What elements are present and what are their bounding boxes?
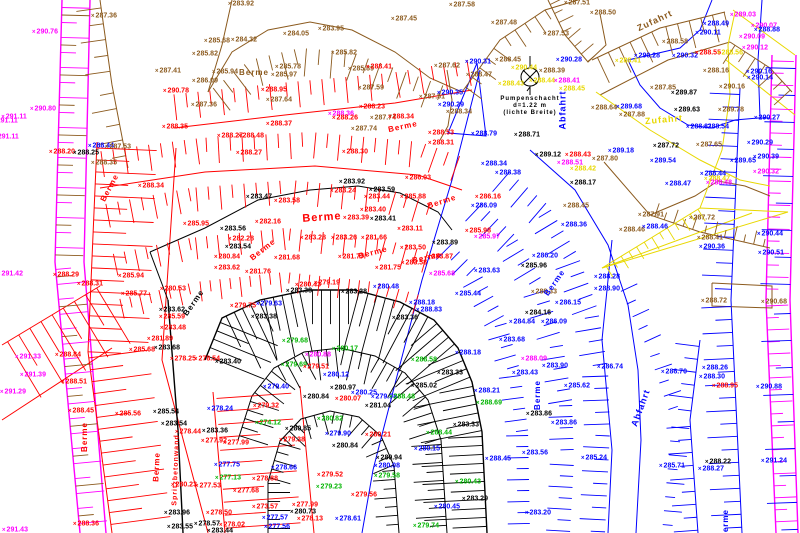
- elevation-point-label: 288.23: [359, 104, 385, 111]
- elevation-point-label: 288.09: [521, 356, 547, 363]
- elevation-point-label: 285.96: [521, 263, 547, 270]
- elevation-point-label: 278.50: [206, 510, 232, 517]
- elevation-point-label: 285.56: [115, 411, 141, 418]
- elevation-point-label: 288.53: [428, 130, 454, 137]
- elevation-point-label: 290.31: [465, 59, 491, 66]
- elevation-point-label: 283.86: [551, 420, 577, 427]
- elevation-point-label: 288.30: [699, 374, 725, 381]
- elevation-point-label: 288.20: [49, 149, 75, 156]
- elevation-point-label: 288.38: [495, 170, 521, 177]
- elevation-point-label: 280.88: [305, 352, 331, 359]
- elevation-point-label: 288.49: [703, 21, 729, 28]
- elevation-point-label: 287.88: [619, 112, 645, 119]
- elevation-point-label: 288.35: [91, 160, 117, 167]
- elevation-point-label: 283.47: [246, 194, 272, 201]
- elevation-point-label: 290.28: [556, 57, 582, 64]
- elevation-point-label: 278.57: [194, 521, 220, 528]
- elevation-point-label: 283.48: [160, 325, 186, 332]
- elevation-point-label: 288.41: [615, 58, 641, 65]
- elevation-point-label: 288.18: [455, 350, 481, 357]
- elevation-point-label: 280.21: [365, 432, 391, 439]
- elevation-point-label: 288.43: [498, 81, 524, 88]
- elevation-point-label: 281.68: [274, 255, 300, 262]
- elevation-point-label: 280.82: [317, 416, 343, 423]
- elevation-point-label: 279.63: [256, 301, 282, 308]
- elevation-point-label: 288.28: [594, 274, 620, 281]
- plan-text-label: Berme: [534, 380, 542, 410]
- elevation-point-label: 288.47: [665, 181, 691, 188]
- elevation-point-label: 289.12: [535, 152, 561, 159]
- elevation-point-label: 283.26: [331, 235, 357, 242]
- plan-text-label: Berme: [182, 288, 206, 317]
- elevation-point-label: 285.95: [183, 221, 209, 228]
- elevation-point-label: 288.37: [266, 121, 292, 128]
- elevation-point-label: 288.83: [416, 307, 442, 314]
- elevation-point-label: 285.71: [659, 463, 685, 470]
- elevation-point-label: 288.44: [426, 430, 452, 437]
- elevation-point-label: 277.57: [262, 515, 288, 522]
- elevation-point-label: 281.89: [147, 336, 173, 343]
- plan-text-label: Abfahrt: [630, 388, 652, 428]
- plan-text-label: Abfahrt: [559, 91, 568, 130]
- elevation-point-label: 281.75: [375, 265, 401, 272]
- elevation-point-label: 277.99: [292, 502, 318, 509]
- elevation-point-label: 286.09: [541, 319, 567, 326]
- elevation-point-label: 290.11: [695, 30, 721, 37]
- plan-text-label: d=1.22 m: [513, 103, 547, 109]
- elevation-point-label: 285.82: [331, 50, 357, 57]
- elevation-point-label: 290.29: [438, 102, 464, 109]
- plan-text-label: Berme: [152, 452, 162, 482]
- elevation-point-label: 288.45: [563, 203, 589, 210]
- elevation-point-label: 282.16: [255, 219, 281, 226]
- plan-text-label: Berme: [302, 211, 342, 225]
- elevation-point-label: 290.76: [32, 29, 58, 36]
- elevation-point-label: 283.96: [164, 510, 190, 517]
- elevation-point-label: 286.15: [555, 300, 581, 307]
- elevation-point-label: 290.14: [747, 75, 773, 82]
- elevation-point-label: 283.92: [228, 1, 254, 8]
- elevation-point-label: 288.90: [594, 286, 620, 293]
- elevation-point-label: 274.12: [255, 420, 281, 427]
- elevation-point-label: 287.53: [543, 31, 569, 38]
- elevation-point-label: 288.46: [642, 224, 668, 231]
- elevation-point-label: 288.41: [697, 235, 723, 242]
- elevation-point-label: 288.48: [706, 180, 732, 187]
- elevation-point-label: 288.34: [138, 183, 164, 190]
- elevation-point-label: 283.43: [512, 370, 538, 377]
- elevation-point-label: 285.68: [429, 271, 455, 278]
- elevation-point-label: 278.88: [252, 476, 278, 483]
- elevation-point-label: 290.35: [437, 90, 463, 97]
- elevation-point-label: 283.29: [462, 496, 488, 503]
- elevation-point-label: 286.09: [192, 78, 218, 85]
- elevation-point-label: 288.25: [73, 150, 99, 157]
- elevation-point-label: 289.68: [616, 104, 642, 111]
- elevation-point-label: 288.39: [539, 68, 565, 75]
- elevation-point-label: 284.84: [509, 319, 535, 326]
- elevation-point-label: 288.48: [238, 133, 264, 140]
- plan-text-label: Berme: [99, 173, 120, 203]
- elevation-point-label: 288.31: [77, 281, 103, 288]
- elevation-point-label: 279.75: [230, 303, 256, 310]
- elevation-point-label: 277.53: [195, 483, 221, 490]
- elevation-point-label: 283.55: [167, 524, 193, 531]
- elevation-point-label: 289.65: [730, 158, 756, 165]
- elevation-point-label: 288.16: [703, 68, 729, 75]
- elevation-point-label: 285.62: [564, 383, 590, 390]
- elevation-point-label: 288.43: [565, 152, 591, 159]
- site-plan-canvas: 287.36290.76287.41290.78288.35291.11291.…: [0, 0, 800, 533]
- elevation-point-label: 291.29: [0, 389, 26, 396]
- elevation-point-label: 287.36: [191, 102, 217, 109]
- elevation-point-label: 285.54: [153, 409, 179, 416]
- elevation-point-label: 291.11: [0, 134, 19, 141]
- elevation-point-label: 288.42: [570, 166, 596, 173]
- plan-text-label: Berme: [358, 245, 389, 260]
- plan-labels-layer: 287.36290.76287.41290.78288.35291.11291.…: [0, 0, 800, 533]
- elevation-point-label: 280.73: [290, 509, 316, 516]
- elevation-point-label: 287.36: [91, 13, 117, 20]
- elevation-point-label: 279.68: [282, 338, 308, 345]
- elevation-point-label: 283.36: [392, 315, 418, 322]
- plan-text-label: Berme: [722, 509, 730, 533]
- elevation-point-label: 286.09: [471, 203, 497, 210]
- elevation-point-label: 285.97: [271, 72, 297, 79]
- elevation-point-label: 288.48: [389, 394, 415, 401]
- elevation-point-label: 279.32: [253, 403, 279, 410]
- elevation-point-label: 291.11: [0, 118, 18, 125]
- elevation-point-label: 283.63: [474, 268, 500, 275]
- elevation-point-label: 288.18: [409, 300, 435, 307]
- elevation-point-label: 287.64: [266, 97, 292, 104]
- elevation-point-label: 277.75: [214, 462, 240, 469]
- elevation-point-label: 283.89: [432, 240, 458, 247]
- elevation-point-label: 285.59: [159, 314, 185, 321]
- elevation-point-label: 287.53: [105, 144, 131, 151]
- elevation-point-label: 287.91: [638, 212, 664, 219]
- elevation-point-label: 288.71: [514, 132, 540, 139]
- elevation-point-label: 283.40: [360, 207, 386, 214]
- elevation-point-label: 287.48: [491, 20, 517, 27]
- elevation-point-label: 281.76: [245, 269, 271, 276]
- elevation-point-label: 288.22: [705, 459, 731, 466]
- elevation-point-label: 283.68: [499, 337, 525, 344]
- elevation-point-label: 289.54: [650, 158, 676, 165]
- elevation-point-label: 277.56: [264, 524, 290, 531]
- elevation-point-label: 290.88: [756, 384, 782, 391]
- elevation-point-label: 286.74: [597, 364, 623, 371]
- elevation-point-label: 290.80: [30, 106, 56, 113]
- elevation-point-label: 280.84: [303, 394, 329, 401]
- elevation-point-label: 278.61: [335, 516, 361, 523]
- elevation-point-label: 285.94: [212, 69, 238, 76]
- elevation-point-label: 286.70: [661, 369, 687, 376]
- elevation-point-label: 273.57: [252, 504, 278, 511]
- elevation-point-label: 285.77: [121, 291, 147, 298]
- elevation-point-label: 291.33: [15, 354, 41, 361]
- elevation-point-label: 285.02: [411, 383, 437, 390]
- elevation-point-label: 278.24: [207, 406, 233, 413]
- elevation-point-label: 288.45: [495, 57, 521, 64]
- elevation-point-label: 288.88: [754, 27, 780, 34]
- plan-text-label: Zufahrt: [636, 9, 674, 33]
- elevation-point-label: 280.94: [376, 455, 402, 462]
- elevation-point-label: 288.56: [717, 50, 743, 57]
- elevation-point-label: 290.39: [753, 154, 779, 161]
- elevation-point-label: 283.95: [318, 26, 344, 33]
- elevation-point-label: 283.36: [202, 428, 228, 435]
- elevation-point-label: 279.90: [325, 431, 351, 438]
- elevation-point-label: 288.51: [61, 379, 87, 386]
- elevation-point-label: 287.74: [351, 126, 377, 133]
- elevation-point-label: 288.72: [701, 298, 727, 305]
- elevation-point-label: 283.59: [369, 187, 395, 194]
- elevation-point-label: 288.45: [485, 456, 511, 463]
- elevation-point-label: 283.54: [225, 244, 251, 251]
- elevation-point-label: 287.45: [391, 16, 417, 23]
- elevation-point-label: 285.68: [129, 347, 155, 354]
- plan-text-label: (lichte Breite): [503, 110, 556, 116]
- elevation-point-label: 291.42: [0, 271, 23, 278]
- elevation-point-label: 288.36: [73, 521, 99, 528]
- elevation-point-label: 280.15: [414, 446, 440, 453]
- elevation-point-label: 288.41: [366, 64, 392, 71]
- elevation-point-label: 283.28: [341, 289, 367, 296]
- elevation-point-label: 283.86: [526, 411, 552, 418]
- elevation-point-label: 279.52: [317, 472, 343, 479]
- elevation-point-label: 286.16: [475, 194, 501, 201]
- elevation-point-label: 283.56: [522, 450, 548, 457]
- elevation-point-label: 290.09: [739, 34, 765, 41]
- elevation-point-label: 288.26: [702, 365, 728, 372]
- elevation-point-label: 290.29: [747, 140, 773, 147]
- elevation-point-label: 278.25: [170, 356, 196, 363]
- elevation-point-label: 283.38: [286, 288, 312, 295]
- elevation-point-label: 289.87: [671, 90, 697, 97]
- elevation-point-label: 283.58: [274, 198, 300, 205]
- elevation-point-label: 288.30: [342, 149, 368, 156]
- elevation-point-label: 288.26: [332, 115, 358, 122]
- elevation-point-label: 285.82: [192, 51, 218, 58]
- elevation-point-label: 288.84: [55, 352, 81, 359]
- elevation-point-label: 280.08: [374, 463, 400, 470]
- elevation-point-label: 290.32: [753, 169, 779, 176]
- elevation-point-label: 290.16: [719, 84, 745, 91]
- elevation-point-label: 283.11: [397, 226, 423, 233]
- elevation-point-label: 288.95: [261, 87, 287, 94]
- elevation-point-label: 280.53: [160, 286, 186, 293]
- elevation-point-label: 289.18: [608, 148, 634, 155]
- elevation-point-label: 287.72: [653, 143, 679, 150]
- plan-text-label: Berme: [388, 120, 419, 134]
- elevation-point-label: 280.48: [373, 284, 399, 291]
- elevation-point-label: 288.21: [474, 388, 500, 395]
- elevation-point-label: 287.65: [696, 142, 722, 149]
- elevation-point-label: 283.38: [251, 314, 277, 321]
- elevation-point-label: 282.28: [228, 236, 254, 243]
- elevation-point-label: 283.44: [364, 194, 390, 201]
- elevation-point-label: 290.78: [163, 88, 189, 95]
- elevation-point-label: 283.92: [339, 179, 365, 186]
- elevation-point-label: 287.59: [358, 85, 384, 92]
- elevation-point-label: 285.97: [474, 234, 500, 241]
- elevation-point-label: 279.19: [314, 280, 340, 287]
- elevation-point-label: 288.29: [53, 272, 79, 279]
- elevation-point-label: 288.36: [561, 222, 587, 229]
- elevation-point-label: 288.17: [570, 180, 596, 187]
- elevation-point-label: 277.68: [233, 488, 259, 495]
- elevation-point-label: 283.50: [400, 245, 426, 252]
- elevation-point-label: 286.03: [405, 175, 431, 182]
- elevation-point-label: 283.56: [220, 226, 246, 233]
- elevation-point-label: 287.51: [564, 0, 590, 7]
- elevation-point-label: 289.03: [730, 12, 756, 19]
- elevation-point-label: 288.41: [554, 78, 580, 85]
- elevation-point-label: 289.78: [718, 107, 744, 114]
- elevation-point-label: 291.24: [761, 458, 787, 465]
- elevation-point-label: 290.44: [757, 231, 783, 238]
- elevation-point-label: 283.20: [525, 510, 551, 517]
- plan-text-label: Berme: [239, 69, 269, 77]
- elevation-point-label: 283.41: [370, 216, 396, 223]
- elevation-point-label: 291.43: [2, 527, 28, 533]
- elevation-point-label: 287.80: [592, 156, 618, 163]
- elevation-point-label: 288.34: [446, 109, 472, 116]
- elevation-point-label: 290.51: [758, 250, 784, 257]
- elevation-point-label: 285.94: [118, 273, 144, 280]
- elevation-point-label: 279.51: [303, 364, 329, 371]
- elevation-point-label: 288.34: [481, 161, 507, 168]
- elevation-point-label: 290.27: [754, 115, 780, 122]
- elevation-point-label: 280.07: [335, 396, 361, 403]
- elevation-point-label: 288.47: [466, 72, 492, 79]
- elevation-point-label: 283.33: [453, 422, 479, 429]
- plan-text-label: Pumpenschacht: [500, 96, 559, 102]
- elevation-point-label: 288.95: [712, 383, 738, 390]
- elevation-point-label: 288.44: [529, 78, 555, 85]
- elevation-point-label: 291.39: [20, 372, 46, 379]
- elevation-point-label: 283.28: [300, 235, 326, 242]
- elevation-point-label: 283.68: [154, 345, 180, 352]
- elevation-point-label: 284.05: [283, 31, 309, 38]
- elevation-point-label: 290.44: [511, 65, 537, 72]
- elevation-point-label: 285.24: [581, 455, 607, 462]
- elevation-point-label: 280.84: [214, 254, 240, 261]
- elevation-point-label: 283.33: [437, 370, 463, 377]
- elevation-point-label: 285.88: [400, 194, 426, 201]
- plan-text-label: Zufahrt: [645, 114, 684, 126]
- elevation-point-label: 288.45: [68, 408, 94, 415]
- elevation-point-label: 283.44: [207, 528, 233, 533]
- elevation-point-label: 280.12: [323, 372, 349, 379]
- elevation-point-label: 287.58: [449, 2, 475, 9]
- elevation-point-label: 283.54: [161, 421, 187, 428]
- elevation-point-label: 287.41: [155, 68, 181, 75]
- elevation-point-label: 279.56: [351, 492, 377, 499]
- elevation-point-label: 280.84: [332, 443, 358, 450]
- elevation-point-label: 287.72: [689, 215, 715, 222]
- elevation-point-label: 284.16: [525, 310, 551, 317]
- elevation-point-label: 283.90: [542, 363, 568, 370]
- elevation-point-label: 277.13: [215, 475, 241, 482]
- elevation-point-label: 279.58: [374, 473, 400, 480]
- elevation-point-label: 279.38: [279, 437, 305, 444]
- elevation-point-label: 280.85: [285, 426, 311, 433]
- elevation-point-label: 283.62: [214, 265, 240, 272]
- elevation-point-label: 288.58: [411, 357, 437, 364]
- elevation-point-label: 280.17: [332, 346, 358, 353]
- elevation-point-label: 288.58: [662, 39, 688, 46]
- plan-text-label: Berme: [81, 422, 89, 452]
- plan-text-label: Berme: [427, 194, 458, 211]
- elevation-point-label: 279.23: [316, 484, 342, 491]
- elevation-point-label: 279.74: [413, 523, 439, 530]
- plan-text-label: Spritzbetonwand: [171, 434, 180, 506]
- elevation-point-label: 285.68: [204, 38, 230, 45]
- elevation-point-label: 287.62: [434, 63, 460, 70]
- elevation-point-label: 286.20: [532, 253, 558, 260]
- elevation-point-label: 283.40: [215, 359, 241, 366]
- elevation-point-label: 290.68: [761, 299, 787, 306]
- elevation-point-label: 277.99: [223, 440, 249, 447]
- elevation-point-label: 288.27: [236, 150, 262, 157]
- elevation-point-label: 290.12: [742, 45, 768, 52]
- elevation-point-label: 281.66: [361, 235, 387, 242]
- elevation-point-label: 285.78: [275, 64, 301, 71]
- elevation-point-label: 283.39: [343, 215, 369, 222]
- elevation-point-label: 285.44: [455, 291, 481, 298]
- elevation-point-label: 281.04: [365, 403, 391, 410]
- elevation-point-label: 279.40: [263, 384, 289, 391]
- elevation-point-label: 288.31: [428, 140, 454, 147]
- elevation-point-label: 288.27: [698, 466, 724, 473]
- elevation-point-label: 288.35: [162, 124, 188, 131]
- elevation-point-label: 288.54: [703, 124, 729, 131]
- elevation-point-label: 288.79: [471, 131, 497, 138]
- elevation-point-label: 278.66: [271, 465, 297, 472]
- elevation-point-label: 290.36: [699, 244, 725, 251]
- elevation-point-label: 278.13: [297, 516, 323, 523]
- elevation-point-label: 280.43: [455, 479, 481, 486]
- elevation-point-label: 288.69: [476, 400, 502, 407]
- elevation-point-label: 284.32: [231, 37, 257, 44]
- elevation-point-label: 288.64: [591, 105, 617, 112]
- elevation-point-label: 288.50: [590, 10, 616, 17]
- elevation-point-label: 280.45: [434, 504, 460, 511]
- elevation-point-label: 283.24: [330, 188, 356, 195]
